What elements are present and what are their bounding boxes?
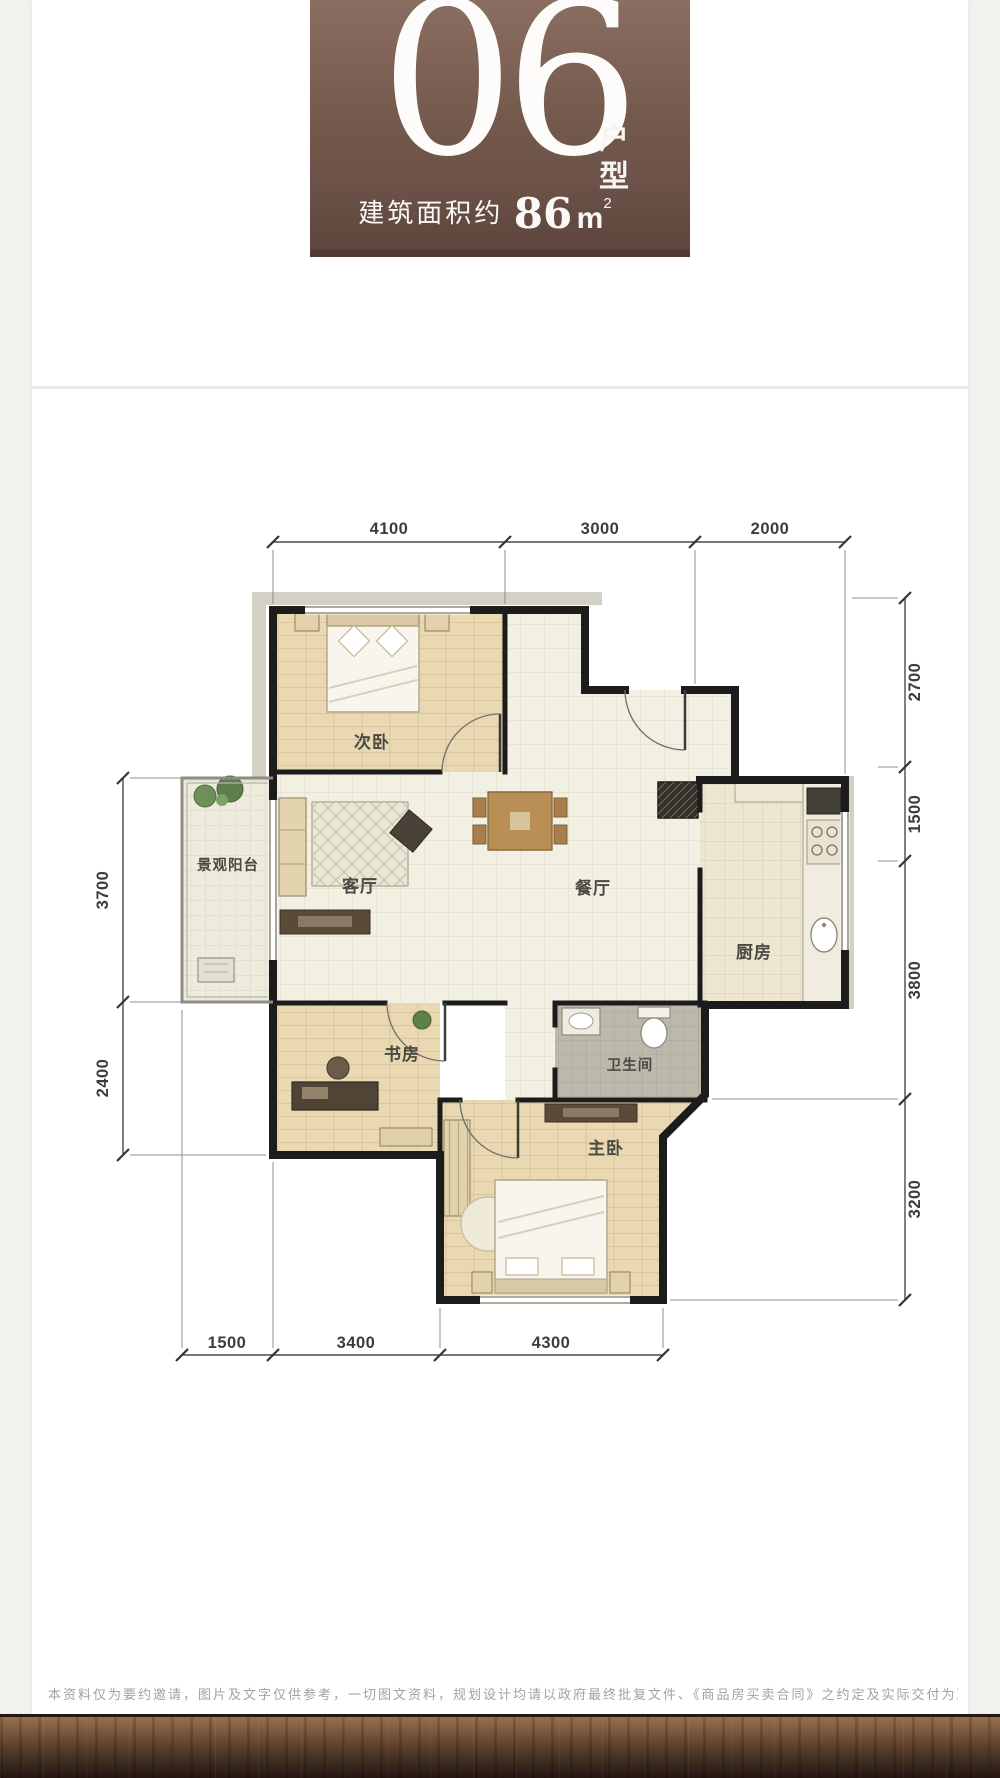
unit-area-unit: m	[577, 202, 604, 235]
dim-top-3000: 3000	[581, 520, 620, 538]
unit-area: 建筑面积约 86 m2	[310, 189, 660, 238]
dim-top-4100: 4100	[370, 520, 409, 538]
footer-bar	[0, 1714, 1000, 1778]
room-label-secondary-bedroom: 次卧	[354, 732, 390, 752]
room-label-study: 书房	[384, 1044, 420, 1064]
dim-top-2000: 2000	[751, 520, 790, 538]
unit-type-card: 06 户型 建筑面积约 86 m2	[310, 0, 690, 257]
room-label-kitchen: 厨房	[736, 942, 772, 962]
dim-right-1500: 1500	[906, 795, 924, 834]
room-label-balcony: 景观阳台	[197, 856, 259, 874]
room-label-dining-room: 餐厅	[575, 878, 611, 898]
dim-left-2400: 2400	[94, 1059, 112, 1098]
unit-area-prefix: 建筑面积约	[358, 198, 503, 228]
page-sheet: 06 户型 建筑面积约 86 m2	[32, 0, 968, 1775]
dim-right-3200: 3200	[906, 1180, 924, 1219]
room-label-master-bedroom: 主卧	[588, 1138, 624, 1158]
disclaimer-text: 本资料仅为要约邀请，图片及文字仅供参考，一切图文资料，规划设计均请以政府最终批复…	[48, 1684, 958, 1703]
unit-type-label: 户型	[588, 122, 632, 198]
room-label-living-room: 客厅	[341, 876, 378, 896]
unit-area-exponent: 2	[603, 195, 611, 212]
dim-bottom-3400: 3400	[337, 1334, 376, 1352]
unit-area-number: 86	[514, 189, 572, 238]
dim-right-2700: 2700	[906, 663, 924, 702]
floor-plan: 4100 3000 2000 2700 1500 3800 3200 3700 …	[40, 480, 940, 1380]
dim-bottom-1500: 1500	[208, 1334, 247, 1352]
section-divider	[32, 386, 968, 389]
dim-left-3700: 3700	[94, 871, 112, 910]
dim-bottom-4300: 4300	[532, 1334, 571, 1352]
dim-right-3800: 3800	[906, 961, 924, 1000]
room-label-bathroom: 卫生间	[607, 1056, 654, 1074]
